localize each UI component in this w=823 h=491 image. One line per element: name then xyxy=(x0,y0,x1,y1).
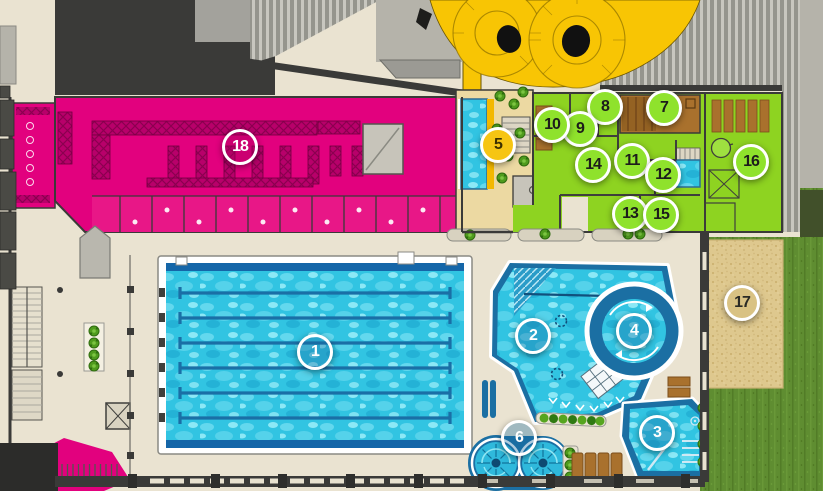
area-marker-4[interactable]: 4 xyxy=(616,313,652,349)
area-marker-3[interactable]: 3 xyxy=(639,415,675,451)
area-marker-6[interactable]: 6 xyxy=(501,420,537,456)
area-marker-17[interactable]: 17 xyxy=(724,285,760,321)
area-marker-12[interactable]: 12 xyxy=(645,157,681,193)
area-marker-7[interactable]: 7 xyxy=(646,90,682,126)
area-marker-2[interactable]: 2 xyxy=(515,318,551,354)
area-marker-16[interactable]: 16 xyxy=(733,144,769,180)
floorplan-canvas: 123456789101112131415161718 xyxy=(0,0,823,491)
area-marker-14[interactable]: 14 xyxy=(575,147,611,183)
area-marker-5[interactable]: 5 xyxy=(480,127,516,163)
area-marker-10[interactable]: 10 xyxy=(534,107,570,143)
markers-layer: 123456789101112131415161718 xyxy=(0,0,823,491)
area-marker-15[interactable]: 15 xyxy=(643,197,679,233)
area-marker-1[interactable]: 1 xyxy=(297,334,333,370)
area-marker-18[interactable]: 18 xyxy=(222,129,258,165)
